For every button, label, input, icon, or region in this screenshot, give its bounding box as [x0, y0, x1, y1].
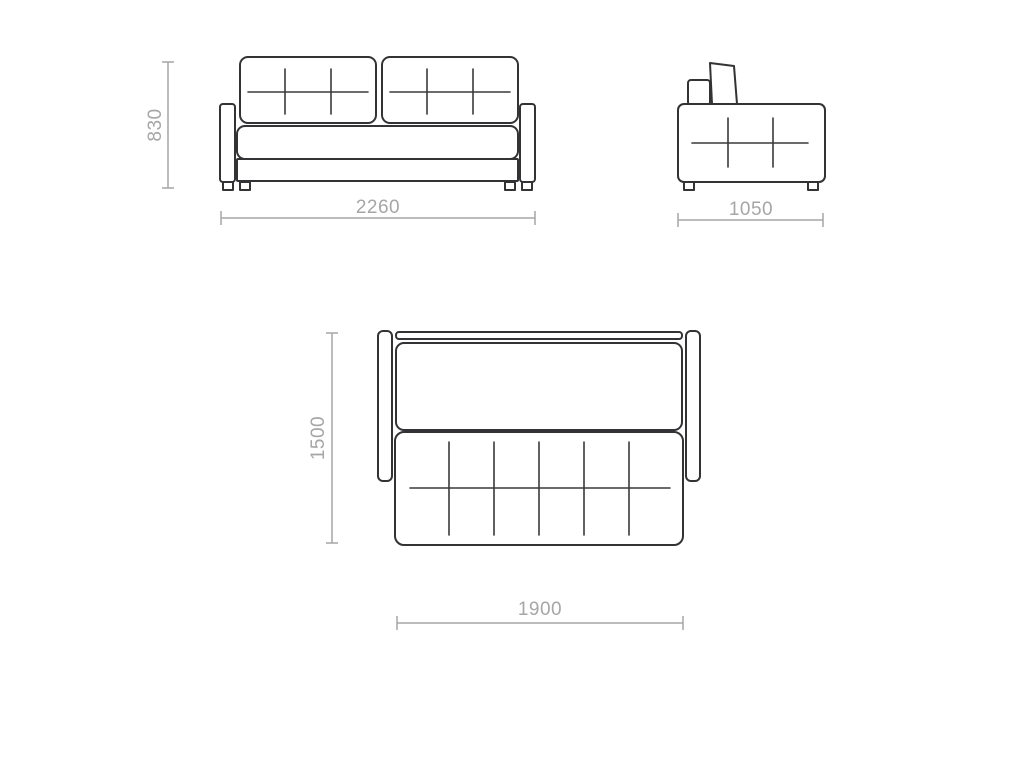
front-foot-outer-right	[522, 182, 532, 190]
front-back-cushion-right	[382, 57, 518, 123]
front-width-label: 2260	[356, 197, 400, 219]
top-view-unfolded	[378, 331, 700, 545]
side-armrest-top	[688, 80, 710, 105]
front-armrest-right	[520, 104, 535, 182]
side-back-cushion-tilted	[710, 63, 737, 104]
unfolded-width-label: 1900	[518, 599, 562, 621]
front-base	[237, 159, 518, 181]
front-height-label: 830	[145, 108, 167, 141]
top-mattress-upper-section	[396, 343, 682, 430]
side-view	[678, 63, 825, 190]
side-foot-left	[684, 182, 694, 190]
front-armrest-left	[220, 104, 235, 182]
unfolded-depth-label: 1500	[308, 416, 330, 460]
side-foot-right	[808, 182, 818, 190]
side-depth-label: 1050	[729, 199, 773, 221]
top-backrest-edge	[396, 332, 682, 339]
front-foot-inner-right	[505, 182, 515, 190]
front-seat-cushion	[237, 126, 518, 159]
sofa-dimensions-diagram: 830 2260 1050 1500 1900	[0, 0, 1024, 768]
front-foot-inner-left	[240, 182, 250, 190]
front-foot-outer-left	[223, 182, 233, 190]
top-armrest-left	[378, 331, 392, 481]
top-armrest-right	[686, 331, 700, 481]
front-view	[220, 57, 535, 190]
front-back-cushion-left	[240, 57, 376, 123]
